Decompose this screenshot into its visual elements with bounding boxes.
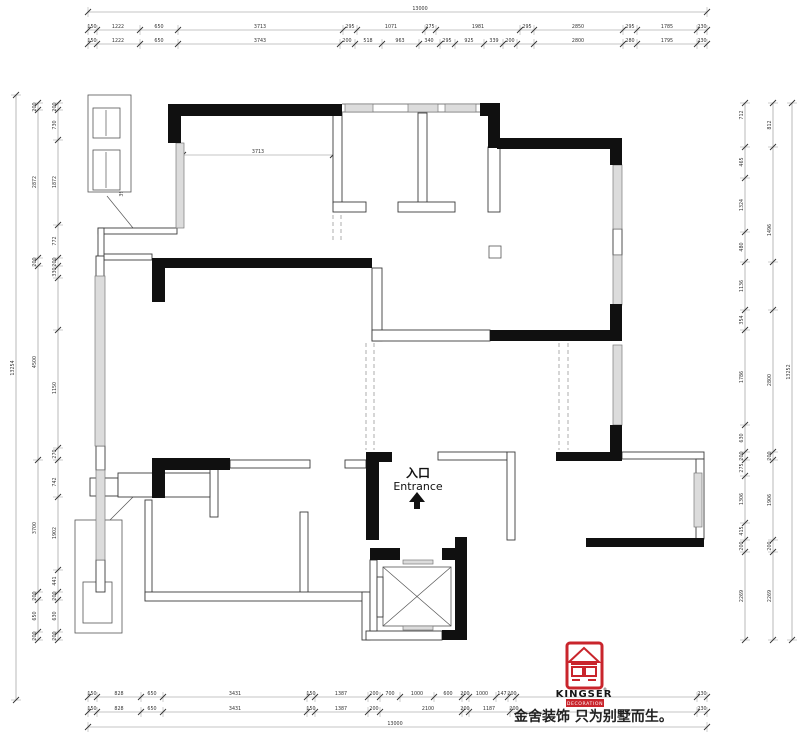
dim-label: 200: [52, 102, 58, 111]
dim-label: 200: [52, 591, 58, 600]
entrance-label: 入口 Entrance: [393, 466, 443, 509]
dim-label: 200: [505, 38, 514, 44]
dim-label: 200: [342, 38, 351, 44]
dim-label: 230: [697, 38, 706, 44]
dim-label: 600: [443, 691, 452, 697]
dim-label: 1387: [335, 706, 347, 712]
dim-label: 1906: [767, 494, 773, 506]
dim-label: 630: [52, 611, 58, 620]
dim-label: 2800: [572, 38, 584, 44]
dim-label: 200: [739, 541, 745, 550]
dim-label: 1306: [739, 493, 745, 505]
dim-label: 200: [32, 102, 38, 111]
dim-label: 147: [497, 691, 506, 697]
dim-label: 1150: [52, 382, 58, 394]
dim-label: 200: [460, 691, 469, 697]
dim-label: 1000: [411, 691, 423, 697]
dim-label: 650: [147, 691, 156, 697]
leader-lines: [107, 196, 150, 520]
dim-label: 650: [154, 24, 163, 30]
dim-label: 1387: [335, 691, 347, 697]
dim-bot_row1: 1508286503431150138720070010006002001000…: [85, 691, 710, 702]
dim-label: 828: [114, 691, 123, 697]
dim-label: 4500: [32, 356, 38, 368]
dim-label: 1786: [739, 371, 745, 383]
dim-label: 1136: [739, 280, 745, 292]
dim-label: 1071: [385, 24, 397, 30]
dim-label: 150: [87, 706, 96, 712]
dim-label: 295: [625, 24, 634, 30]
dim-label: 150: [87, 24, 96, 30]
dim-label: 1981: [472, 24, 484, 30]
dim-label: 812: [767, 120, 773, 129]
dim-room_width: 3713: [180, 149, 336, 160]
dim-label: 465: [739, 157, 745, 166]
dim-label: 230: [697, 24, 706, 30]
elevator-shaft: [377, 560, 451, 630]
dim-label: 1324: [739, 199, 745, 211]
dim-label: 700: [385, 691, 394, 697]
dim-top_row1: 1501222650371329510712751981295285029517…: [85, 24, 710, 35]
dim-label: 200: [52, 257, 58, 266]
dim-label: 150: [87, 691, 96, 697]
dim-label: 3713: [254, 24, 266, 30]
dim-right_mid: 8121496280020019062002269: [767, 100, 778, 643]
dim-label: 295: [345, 24, 354, 30]
dim-label: 650: [154, 38, 163, 44]
dim-label: 518: [363, 38, 372, 44]
floor-plan-page: 1300015012226503713295107127519812952850…: [0, 0, 800, 756]
dim-label: 1222: [112, 24, 124, 30]
dim-label: 354: [739, 315, 745, 324]
dim-label: 1785: [661, 24, 673, 30]
dim-label: 200: [52, 631, 58, 640]
dim-label: 339: [489, 38, 498, 44]
dim-label: 1795: [661, 38, 673, 44]
registered-mark: ®: [603, 687, 607, 692]
dim-label: 200: [32, 257, 38, 266]
dim-top_total: 13000: [85, 6, 710, 17]
dim-label: 742: [52, 477, 58, 486]
dim-label: 200: [507, 691, 516, 697]
dim-label: 630: [739, 433, 745, 442]
brand-sub: DECORATION: [567, 701, 603, 707]
dim-label: 480: [739, 242, 745, 251]
dim-label: 3431: [229, 706, 241, 712]
brand-slogan: 金舍装饰 只为别墅而生。: [513, 708, 673, 725]
dim-label: 650: [32, 611, 38, 620]
dim-label: 200: [460, 706, 469, 712]
dim-label: 200: [32, 631, 38, 640]
dim-right_total: 13252: [786, 100, 797, 643]
dim-label: 925: [464, 38, 473, 44]
entrance-arrow-icon: [409, 492, 425, 509]
dim-label: 150: [306, 706, 315, 712]
dim-label: 1187: [483, 706, 495, 712]
dim-label: 200: [767, 451, 773, 460]
dim-label: 2850: [572, 24, 584, 30]
entrance-label-en: Entrance: [393, 480, 443, 493]
dim-label: 230: [697, 691, 706, 697]
dim-label: 2872: [32, 176, 38, 188]
dim-label: 441: [52, 576, 58, 585]
dim-label: 3743: [254, 38, 266, 44]
kingser-logo: KINGSER ® DECORATION 金舍装饰 只为别墅而生。: [513, 643, 673, 725]
kingser-emblem-icon: [567, 643, 602, 688]
dim-label: 275: [739, 463, 745, 472]
dim-label: 1000: [476, 691, 488, 697]
dim-label: 2100: [422, 706, 434, 712]
dim-label: 2269: [739, 590, 745, 602]
dim-label: 330: [52, 267, 58, 276]
dim-label: 772: [52, 236, 58, 245]
dim-label: 730: [52, 120, 58, 129]
dim-label: 650: [147, 706, 156, 712]
dim-label: 3431: [229, 691, 241, 697]
dim-label: 3713: [252, 149, 264, 155]
dim-label: 1496: [767, 224, 773, 236]
dim-label: 963: [395, 38, 404, 44]
dim-label: 415: [739, 526, 745, 535]
dim-label: 230: [697, 706, 706, 712]
dim-label: 13000: [412, 6, 427, 12]
dim-label: 13254: [10, 360, 16, 375]
dim-label: 1222: [112, 38, 124, 44]
dim-label: 200: [767, 541, 773, 550]
dim-label: 200: [369, 706, 378, 712]
dim-label: 13252: [786, 364, 792, 379]
dim-label: 1872: [52, 176, 58, 188]
dim-right_in: 7124651324480113635417866302002751306415…: [739, 100, 750, 643]
dim-label: 295: [442, 38, 451, 44]
dim-label: 200: [739, 451, 745, 460]
dim-label: 150: [306, 691, 315, 697]
floor-plan-drawing: 1300015012226503713295107127519812952850…: [0, 0, 800, 756]
dim-label: 1902: [52, 527, 58, 539]
dim-top_row2: 1501222650374320051896334029592533920028…: [85, 38, 710, 49]
dim-label: 275: [425, 24, 434, 30]
dim-label: 150: [87, 38, 96, 44]
dim-label: 200: [32, 591, 38, 600]
dim-label: 270: [52, 449, 58, 458]
dim-left_in: 2007301872772200330115027074219024412006…: [52, 100, 63, 643]
dim-label: 2800: [767, 374, 773, 386]
dim-label: 2269: [767, 590, 773, 602]
entrance-label-cn: 入口: [406, 466, 430, 480]
dim-label: 3700: [32, 522, 38, 534]
dim-left_total: 13254: [10, 92, 21, 703]
dim-label: 712: [739, 110, 745, 119]
dim-label: 280: [625, 38, 634, 44]
dim-label: 340: [424, 38, 433, 44]
dim-label: 200: [369, 691, 378, 697]
dim-label: 295: [522, 24, 531, 30]
dim-left_mid: 200287220045003700200650200: [32, 100, 43, 643]
dim-label: 13000: [387, 721, 402, 727]
dim-label: 828: [114, 706, 123, 712]
